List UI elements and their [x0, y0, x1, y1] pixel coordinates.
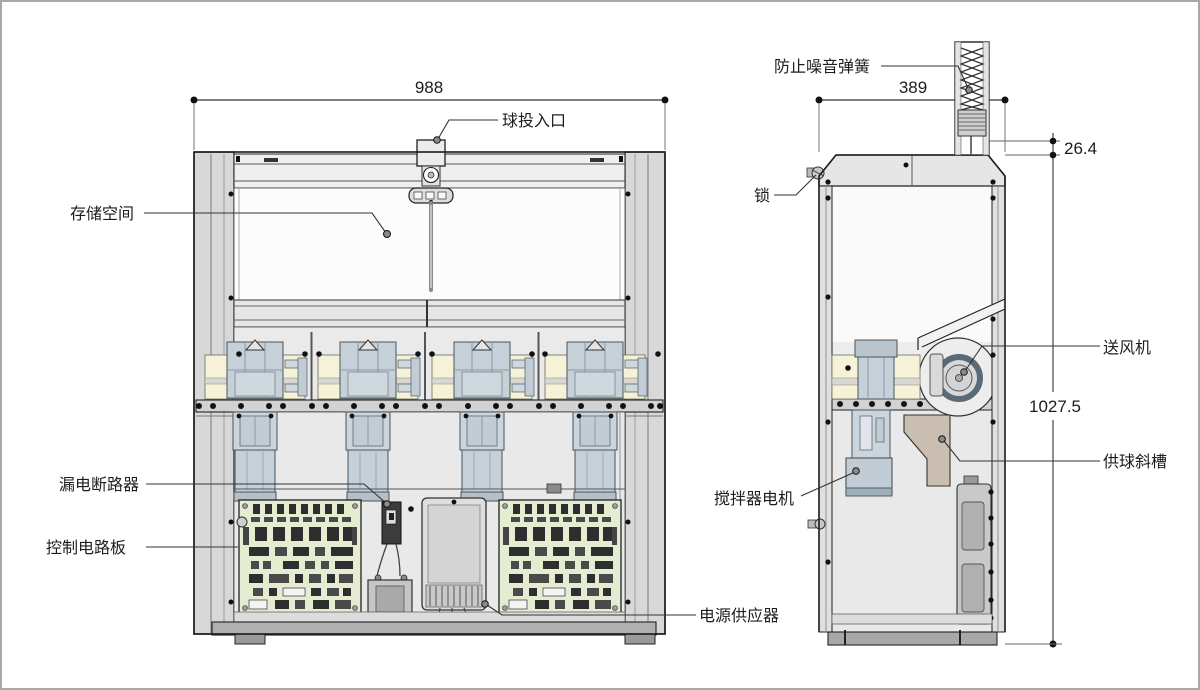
- label-ball-chute: 供球斜槽: [1103, 453, 1167, 471]
- motor-module-row: [205, 327, 661, 400]
- label-power-supply: 电源供应器: [699, 606, 779, 625]
- label-control-board: 控制电路板: [46, 539, 126, 557]
- label-stirrer-motor: 搅拌器电机: [714, 490, 794, 508]
- front-base: [212, 612, 656, 644]
- technical-drawing: 988 389 26.4 1027.5 球投入口 存储空间 漏电断路器 控制电路…: [2, 2, 1198, 688]
- blower-fan: [919, 338, 997, 416]
- side-right-wall: [992, 186, 1005, 632]
- label-noise-spring: 防止噪音弹簧: [774, 57, 870, 76]
- side-view: [807, 155, 1005, 645]
- wing-bolt: [808, 519, 825, 529]
- noise-spring-tower: [881, 42, 989, 155]
- label-storage-space: 存储空间: [70, 205, 134, 223]
- circuit-board-left: [239, 500, 361, 614]
- dim-width-988: 988: [415, 78, 443, 97]
- mid-rail: [234, 300, 625, 327]
- label-leakage-breaker: 漏电断路器: [59, 476, 139, 494]
- label-lock: 锁: [754, 187, 770, 205]
- stirrer-motor: [846, 410, 892, 496]
- side-left-wall: [819, 186, 832, 632]
- label-ball-inlet: 球投入口: [502, 112, 566, 130]
- circuit-board-right: [499, 500, 621, 614]
- front-view: [194, 140, 665, 644]
- right-wall-mechanism: [957, 476, 994, 624]
- technical-drawing-page: 988 389 26.4 1027.5 球投入口 存储空间 漏电断路器 控制电路…: [0, 0, 1200, 690]
- dim-gap-26-4: 26.4: [1064, 139, 1097, 158]
- label-blower-fan: 送风机: [1103, 339, 1151, 357]
- dim-height-1027-5: 1027.5: [1029, 397, 1081, 416]
- power-supply-unit: [422, 498, 486, 620]
- dim-depth-389: 389: [899, 78, 927, 97]
